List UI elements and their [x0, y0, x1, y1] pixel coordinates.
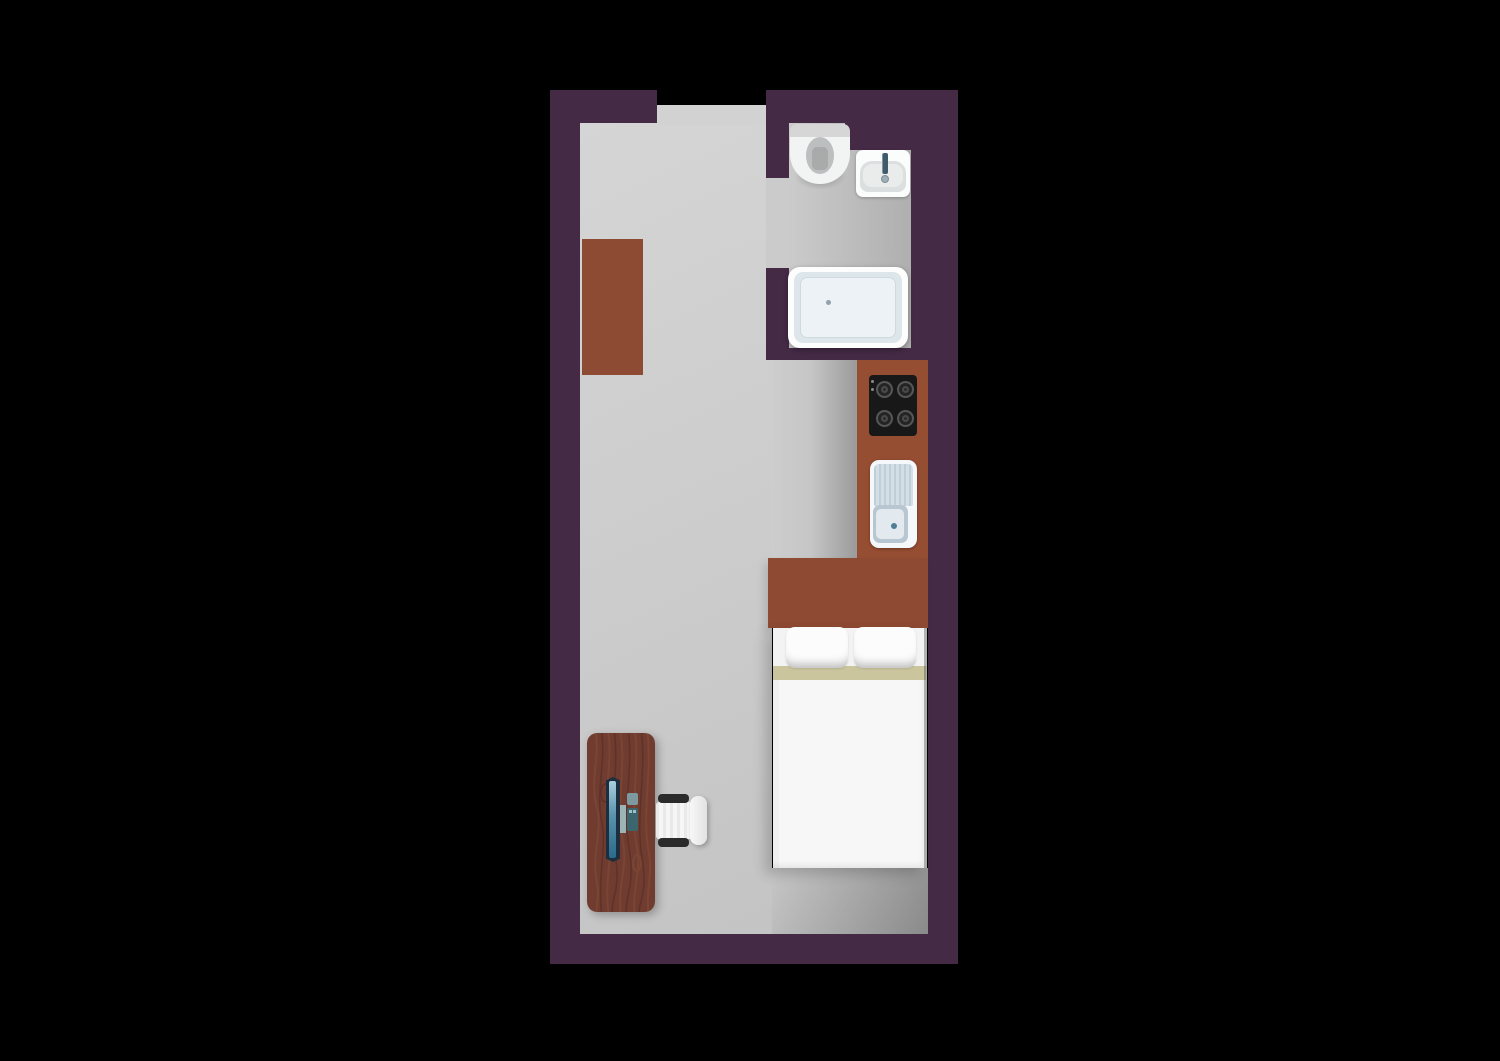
kitchen-floor [772, 360, 857, 558]
monitor [606, 777, 620, 862]
drain-icon [891, 523, 897, 529]
kitchen-sink [870, 460, 917, 548]
wall-behind-washbasin [845, 123, 911, 150]
chair-backrest [690, 796, 707, 845]
bathroom-partition-mid [766, 268, 789, 360]
drain-icon [826, 300, 831, 305]
chair-seat [656, 802, 692, 839]
drain-icon [881, 175, 889, 183]
drainboard-icon [874, 464, 913, 506]
mouse [627, 793, 638, 805]
bathtub [788, 267, 908, 348]
floor-plan-canvas [0, 0, 1500, 1061]
faucet-icon [882, 153, 888, 174]
toilet-seat [812, 147, 828, 170]
floor-below-bed [772, 868, 928, 935]
cooktop-knob-icon [871, 380, 874, 383]
burner-icon [876, 410, 893, 427]
wall-top-left [550, 90, 657, 123]
office-chair [656, 793, 707, 848]
wall-left [550, 90, 580, 964]
chair-armrest [658, 838, 689, 847]
toilet [790, 124, 850, 192]
cooktop [869, 375, 917, 436]
washbasin [856, 150, 910, 197]
cooktop-knob-icon [871, 388, 874, 391]
key-icon [629, 810, 632, 813]
wardrobe [582, 239, 643, 375]
bathroom-partition-top [766, 90, 789, 178]
key-icon [633, 810, 636, 813]
chair-armrest [658, 794, 689, 803]
entry-doorway-floor [657, 105, 766, 125]
blanket-band [773, 666, 926, 680]
bed-headboard-counter [768, 558, 928, 628]
bathtub-floor [800, 277, 896, 338]
pillow [854, 627, 916, 668]
wall-right-bathroom [911, 90, 958, 360]
pillow [786, 627, 848, 668]
bed-edge-shadow [924, 628, 927, 868]
monitor-screen [609, 781, 616, 858]
mattress [773, 679, 926, 868]
double-bed [773, 628, 927, 868]
wall-bottom [550, 934, 958, 964]
bathroom-doorway-floor [766, 178, 789, 268]
burner-icon [897, 410, 914, 427]
sink-basin-inner [876, 509, 904, 539]
bathroom-wall-bottom [766, 348, 911, 360]
burner-icon [897, 381, 914, 398]
burner-icon [876, 381, 893, 398]
keyboard [627, 808, 638, 831]
